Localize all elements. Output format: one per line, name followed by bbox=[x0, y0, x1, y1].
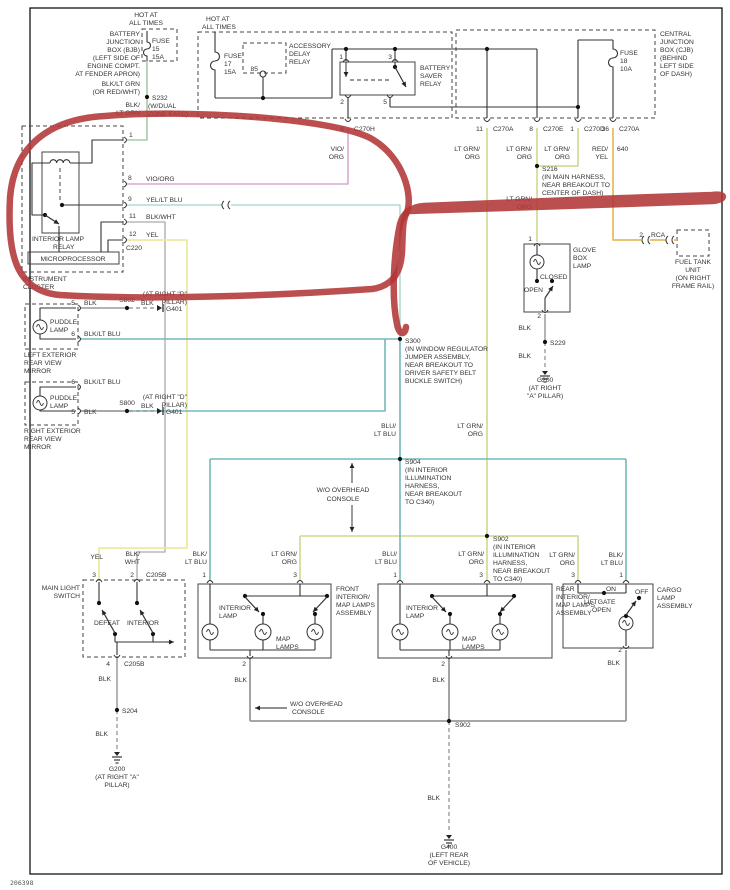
diagram-label: RELAY bbox=[53, 244, 75, 251]
diagram-label: FRAME RAIL) bbox=[672, 283, 714, 290]
diagram-label: LT GRN/ bbox=[544, 146, 570, 153]
splice-dot bbox=[485, 534, 489, 538]
diagram-label: 6 bbox=[71, 379, 75, 386]
wire bbox=[101, 222, 123, 252]
diagram-label: OPEN bbox=[524, 287, 543, 294]
diagram-label: CENTRAL bbox=[660, 31, 691, 38]
diagram-label: NEAR BREAKOUT bbox=[405, 491, 462, 498]
diagram-label: MIRROR bbox=[24, 444, 51, 451]
diagram-label: (BEHIND bbox=[660, 55, 688, 62]
diagram-label: JUMPER ASSEMBLY, bbox=[405, 354, 471, 361]
diagram-label: BLK/WHT bbox=[146, 214, 176, 221]
diagram-label: TO C340) bbox=[493, 576, 522, 583]
diagram-label: 1 bbox=[570, 126, 574, 133]
wire bbox=[108, 240, 123, 252]
diagram-label: LEFT EXTERIOR bbox=[24, 352, 76, 359]
fuse-17-icon bbox=[211, 50, 220, 72]
splice-dot bbox=[447, 719, 451, 723]
diagram-label: LAMP bbox=[50, 403, 69, 410]
diagram-label: S902 bbox=[493, 536, 509, 543]
splice-dot bbox=[97, 601, 101, 605]
diagram-label: BLK bbox=[607, 660, 620, 667]
diagram-label: FUSE bbox=[224, 53, 242, 60]
diagram-label: ALL TIMES bbox=[202, 24, 236, 31]
diagram-label: 3 bbox=[479, 572, 483, 579]
diagram-label: LAMPS bbox=[462, 644, 485, 651]
diagram-label: LIFTGATE bbox=[584, 599, 616, 606]
arrowhead-icon bbox=[350, 527, 355, 532]
splice-dot bbox=[60, 203, 64, 207]
diagram-label: HOT AT bbox=[134, 12, 158, 19]
diagram-label: 5 bbox=[383, 99, 387, 106]
diagram-label: C205B bbox=[124, 661, 145, 668]
diagram-label: (ON RIGHT bbox=[676, 275, 711, 282]
diagram-label: S232 bbox=[152, 95, 168, 102]
connector-pin-icon bbox=[575, 119, 581, 122]
diagram-label: ON bbox=[606, 586, 616, 593]
diagram-label: TO C340) bbox=[405, 499, 434, 506]
diagram-label: OF VEHICLE) bbox=[428, 860, 470, 867]
lamp-filament-icon bbox=[397, 630, 404, 635]
diagram-label: 1 bbox=[619, 572, 623, 579]
arrowhead-icon bbox=[548, 286, 553, 291]
splice-dot bbox=[498, 612, 502, 616]
diagram-label: BATTERY bbox=[420, 65, 451, 72]
diagram-label: CLOSED bbox=[540, 274, 568, 281]
diagram-label: BLK/LT BLU bbox=[84, 331, 121, 338]
diagram-label: 9 bbox=[128, 196, 132, 203]
diagram-label: RELAY bbox=[420, 81, 442, 88]
connector-pin-icon bbox=[124, 181, 127, 187]
diagram-label: BLK bbox=[432, 677, 445, 684]
diagram-label: PUDDLE bbox=[50, 395, 78, 402]
diagram-label: MAP bbox=[462, 636, 477, 643]
connector-pin-icon bbox=[397, 581, 403, 584]
diagram-label: NEAR BREAKOUT TO bbox=[405, 362, 473, 369]
arrowhead-icon bbox=[255, 706, 260, 711]
fuel-tank-unit-box bbox=[677, 230, 709, 256]
arrowhead-icon bbox=[169, 640, 174, 645]
splice-dot bbox=[393, 47, 397, 51]
diagram-label: ASSEMBLY bbox=[556, 610, 592, 617]
diagram-label: ALL TIMES bbox=[129, 20, 163, 27]
diagram-label: ORG bbox=[517, 154, 532, 161]
diagram-label: JUNCTION bbox=[106, 39, 140, 46]
diagram-label: INTERIOR/ bbox=[336, 594, 370, 601]
connector-pin-icon bbox=[96, 580, 102, 583]
splice-dot bbox=[344, 47, 348, 51]
connector-pin-icon bbox=[124, 137, 127, 143]
diagram-label: (AT RIGHT "D" bbox=[143, 394, 188, 401]
diagram-label: C270E bbox=[543, 126, 564, 133]
diagram-label: S229 bbox=[550, 340, 566, 347]
inline-connector-icon bbox=[222, 201, 230, 209]
diagram-label: REAR bbox=[556, 586, 575, 593]
diagram-label: LT GRN/ bbox=[549, 552, 575, 559]
diagram-label: 2 bbox=[537, 313, 541, 320]
splice-dot bbox=[261, 96, 265, 100]
splice-dot bbox=[125, 409, 129, 413]
diagram-label: INTERIOR bbox=[127, 620, 159, 627]
diagram-label: REAR VIEW bbox=[24, 360, 62, 367]
diagram-label: 1 bbox=[129, 132, 133, 139]
diagram-label: ORG bbox=[555, 154, 570, 161]
diagram-label: 4 bbox=[106, 661, 110, 668]
diagram-label: (LEFT REAR bbox=[430, 852, 469, 859]
diagram-label: 3 bbox=[293, 572, 297, 579]
diagram-label: C220 bbox=[126, 245, 142, 252]
splice-dot bbox=[637, 596, 641, 600]
diagram-label: 1 bbox=[393, 572, 397, 579]
diagram-label: RELAY bbox=[289, 59, 311, 66]
diagram-label: S216 bbox=[542, 166, 558, 173]
splice-dot bbox=[145, 95, 149, 99]
wiring-diagram: HOT ATALL TIMESBATTERYJUNCTIONBOX (BJB)(… bbox=[0, 0, 730, 890]
wire bbox=[32, 163, 50, 215]
diagram-label: 10A bbox=[620, 66, 632, 73]
diagram-label: DRIVER SAFETY BELT bbox=[405, 370, 476, 377]
diagram-label: HARNESS, bbox=[405, 483, 439, 490]
connector-pin-icon bbox=[534, 119, 540, 122]
diagram-label: BLK bbox=[518, 325, 531, 332]
diagram-label: BLK bbox=[84, 300, 97, 307]
lamp-filament-icon bbox=[534, 260, 541, 265]
diagram-label: NEAR BREAKOUT bbox=[493, 568, 550, 575]
diagram-label: LT GRN/ bbox=[506, 146, 532, 153]
splice-dot bbox=[543, 340, 547, 344]
diagram-label: BATTERY bbox=[110, 31, 141, 38]
diagram-label: BLK bbox=[98, 676, 111, 683]
diagram-label: 11 bbox=[476, 126, 483, 133]
diagram-label: (W/DUAL bbox=[148, 103, 177, 110]
diagram-label: MAIN LIGHT bbox=[42, 585, 80, 592]
diagram-label: 2 bbox=[242, 661, 246, 668]
diagram-label: PUDDLE bbox=[50, 319, 78, 326]
splice-dot bbox=[535, 279, 539, 283]
diagram-label: LEFT SIDE bbox=[660, 63, 694, 70]
diagram-label: MICROPROCESSOR bbox=[40, 256, 105, 263]
diagram-label: MAP LAMPS bbox=[336, 602, 375, 609]
diagram-label: YEL bbox=[595, 154, 608, 161]
diagram-label: BLK/LT GRN bbox=[102, 81, 141, 88]
splice-dot bbox=[485, 47, 489, 51]
diagram-label: INTERIOR bbox=[219, 605, 251, 612]
diagram-label: WHT bbox=[125, 559, 140, 566]
diagram-label: FUSE bbox=[152, 38, 170, 45]
diagram-label: BLK bbox=[234, 677, 247, 684]
lamp-filament-icon bbox=[37, 325, 44, 330]
connector-pin-icon bbox=[114, 655, 120, 658]
diagram-label: 3 bbox=[388, 54, 392, 61]
diagram-label: BOX (CJB) bbox=[660, 47, 693, 54]
relay-coil-icon bbox=[50, 160, 70, 163]
diagram-label: 15A bbox=[224, 69, 236, 76]
diagram-label: 8 bbox=[529, 126, 533, 133]
diagram-label: ASSEMBLY bbox=[657, 603, 693, 610]
connector-pin-icon bbox=[124, 237, 127, 243]
diagram-label: G401 bbox=[166, 306, 183, 313]
diagram-label: YEL bbox=[146, 232, 159, 239]
front-map-lamps-box bbox=[198, 584, 331, 658]
diagram-label: RIGHT EXTERIOR bbox=[24, 428, 81, 435]
battery-saver-relay-box bbox=[340, 62, 415, 95]
diagram-label: 6 bbox=[71, 331, 75, 338]
diagram-label: BLK bbox=[427, 795, 440, 802]
diagram-label: OF DASH) bbox=[660, 71, 692, 78]
splice-dot bbox=[398, 457, 402, 461]
diagram-label: CARGO bbox=[657, 587, 682, 594]
diagram-label: LT BLU bbox=[375, 559, 397, 566]
diagram-label: LAMPS bbox=[276, 644, 299, 651]
diagram-label: PILLAR) bbox=[162, 402, 187, 409]
diagram-label: (IN INTERIOR bbox=[405, 467, 448, 474]
diagram-label: 15 bbox=[152, 46, 160, 53]
ground-icon bbox=[542, 371, 548, 375]
diagram-label: (IN WINDOW REGULATOR bbox=[405, 346, 488, 353]
diagram-label: 1 bbox=[339, 54, 343, 61]
diagram-label: ORG bbox=[465, 154, 480, 161]
diagram-label: HARNESS, bbox=[493, 560, 527, 567]
lamp-filament-icon bbox=[260, 630, 267, 635]
diagram-label: ORG bbox=[468, 431, 483, 438]
wire-red-yel bbox=[613, 128, 641, 240]
diagram-label: S902 bbox=[455, 722, 471, 729]
diagram-label: LT BLU bbox=[185, 559, 207, 566]
diagram-label: OFF bbox=[635, 589, 648, 596]
diagram-label: CONSOLE bbox=[327, 496, 360, 503]
diagram-label: LT GRN/ bbox=[271, 551, 297, 558]
diagram-label: LT GRN/ bbox=[458, 551, 484, 558]
fuse-18-icon bbox=[609, 47, 618, 69]
diagram-label: AT FENDER APRON) bbox=[75, 71, 140, 78]
diagram-label: 1 bbox=[528, 236, 532, 243]
diagram-label: PILLAR) bbox=[104, 782, 129, 789]
diagram-label: C270A bbox=[493, 126, 514, 133]
diagram-label: 17 bbox=[224, 61, 232, 68]
accessory-delay-relay-box bbox=[243, 43, 286, 73]
diagram-label: INTERIOR bbox=[406, 605, 438, 612]
splice-dot bbox=[261, 612, 265, 616]
diagram-label: INTERIOR LAMP bbox=[32, 236, 85, 243]
diagram-label: 11 bbox=[129, 213, 136, 220]
diagram-label: BLK bbox=[141, 403, 154, 410]
diagram-label: BLK/ bbox=[609, 552, 624, 559]
diagram-label: BLK bbox=[518, 353, 531, 360]
sheet-number: 206398 bbox=[10, 879, 33, 887]
diagram-label: 2 bbox=[441, 661, 445, 668]
diagram-label: 8 bbox=[128, 175, 132, 182]
diagram-label: 85 bbox=[251, 66, 259, 73]
diagram-label: S800 bbox=[119, 400, 135, 407]
diagram-label: LAMP bbox=[573, 263, 592, 270]
diagram-label: RED/ bbox=[592, 146, 608, 153]
diagram-label: "A" PILLAR) bbox=[527, 393, 563, 400]
diagram-label: (LEFT SIDE OF bbox=[93, 55, 140, 62]
lamp-filament-icon bbox=[37, 401, 44, 406]
interior-lamp-relay-box bbox=[42, 152, 79, 233]
lamp-filament-icon bbox=[207, 630, 214, 635]
splice-dot bbox=[398, 337, 402, 341]
diagram-label: (IN MAIN HARNESS, bbox=[542, 174, 606, 181]
diagram-label: 2 bbox=[639, 232, 643, 239]
inline-connector-icon bbox=[666, 236, 674, 244]
diagram-label: LT BLU bbox=[374, 431, 396, 438]
diagram-label: ORG bbox=[282, 559, 297, 566]
diagram-label: (OR RED/WHT) bbox=[92, 89, 140, 96]
diagram-label: UNIT bbox=[685, 267, 701, 274]
diagram-label: VIO/ bbox=[331, 146, 345, 153]
connector-pin-icon bbox=[124, 202, 127, 208]
diagram-label: BLK bbox=[84, 409, 97, 416]
ground-icon bbox=[446, 835, 452, 839]
diagram-label: CONSOLE bbox=[292, 709, 325, 716]
diagram-label: (AT RIGHT "A" bbox=[95, 774, 139, 781]
diagram-label: REAR VIEW bbox=[24, 436, 62, 443]
fuse-15-icon bbox=[144, 40, 151, 58]
lamp-filament-icon bbox=[447, 630, 454, 635]
diagram-label: BLK/LT BLU bbox=[84, 379, 121, 386]
connector-pin-icon bbox=[124, 219, 127, 225]
diagram-label: ORG bbox=[560, 560, 575, 567]
diagram-label: (AT RIGHT bbox=[529, 385, 562, 392]
connector-pin-icon bbox=[623, 581, 629, 584]
lamp-filament-icon bbox=[312, 630, 319, 635]
diagram-label: GLOVE bbox=[573, 247, 597, 254]
connector-pin-icon bbox=[610, 119, 616, 122]
diagram-label: LT GRN/ bbox=[454, 146, 480, 153]
diagram-label: ENGINE COMPT. bbox=[87, 63, 140, 70]
diagram-label: NEAR BREAKOUT TO bbox=[542, 182, 610, 189]
central-junction-box bbox=[456, 30, 655, 118]
diagram-label: BOX (BJB) bbox=[107, 47, 140, 54]
lamp-filament-icon bbox=[497, 630, 504, 635]
diagram-label: DELAY bbox=[289, 51, 311, 58]
diagram-label: (IN INTERIOR bbox=[493, 544, 536, 551]
diagram-label: 3 bbox=[92, 572, 96, 579]
diagram-label: G401 bbox=[166, 409, 183, 416]
diagram-label: BOX bbox=[573, 255, 588, 262]
diagram-label: DEFEAT bbox=[94, 620, 120, 627]
splice-dot bbox=[313, 612, 317, 616]
diagram-label: LT BLU bbox=[601, 560, 623, 567]
diagram-label: C205B bbox=[146, 572, 167, 579]
diagram-label: 18 bbox=[620, 58, 628, 65]
splice-dot bbox=[125, 306, 129, 310]
lamp-filament-icon bbox=[623, 621, 630, 626]
arrowhead-icon bbox=[344, 72, 349, 77]
diagram-label: G400 bbox=[441, 844, 458, 851]
connector-pin-icon bbox=[484, 119, 490, 122]
diagram-label: 5 bbox=[71, 300, 75, 307]
diagram-label: LAMP bbox=[406, 613, 425, 620]
connector-pin-icon bbox=[575, 581, 581, 584]
diagram-label: FRONT bbox=[336, 586, 359, 593]
diagram-label: C270A bbox=[619, 126, 640, 133]
diagram-label: YEL bbox=[90, 554, 103, 561]
diagram-label: ORG bbox=[329, 154, 344, 161]
wiring-diagram-page: HOT ATALL TIMESBATTERYJUNCTIONBOX (BJB)(… bbox=[0, 0, 730, 890]
diagram-label: YEL/LT BLU bbox=[146, 197, 183, 204]
diagram-label: ILLUMINATION bbox=[405, 475, 451, 482]
diagram-label: S300 bbox=[405, 338, 421, 345]
diagram-label: HOT AT bbox=[206, 16, 230, 23]
connector-pin-icon bbox=[345, 119, 351, 122]
diagram-label: 640 bbox=[617, 146, 628, 153]
diagram-label: SWITCH bbox=[54, 593, 81, 600]
diagram-label: BLU/ bbox=[381, 423, 396, 430]
diagram-label: 5 bbox=[71, 409, 75, 416]
diagram-label: FUEL TANK bbox=[675, 259, 711, 266]
inline-connector-icon bbox=[642, 236, 650, 244]
diagram-label: 3 bbox=[571, 572, 575, 579]
diagram-label: W/O OVERHEAD bbox=[317, 487, 370, 494]
connector-pin-icon bbox=[207, 581, 213, 584]
arrowhead-icon bbox=[631, 601, 636, 606]
diagram-label: BLK bbox=[95, 731, 108, 738]
diagram-label: MIRROR bbox=[24, 368, 51, 375]
diagram-label: RCA bbox=[651, 232, 666, 239]
relay-terminal-icon bbox=[260, 71, 266, 77]
diagram-label: 12 bbox=[129, 231, 137, 238]
diagram-label: FUSE bbox=[620, 50, 638, 57]
diagram-label: G200 bbox=[109, 766, 126, 773]
diagram-label: 15A bbox=[152, 54, 164, 61]
diagram-label: 2 bbox=[130, 572, 134, 579]
diagram-label: 36 bbox=[602, 126, 610, 133]
diagram-label: ORG bbox=[469, 559, 484, 566]
diagram-label: BLU/ bbox=[382, 551, 397, 558]
diagram-label: JUNCTION bbox=[660, 39, 694, 46]
diagram-label: 1 bbox=[202, 572, 206, 579]
diagram-label: 2 bbox=[340, 99, 344, 106]
diagram-label: BLK bbox=[141, 300, 154, 307]
diagram-label: ASSEMBLY bbox=[336, 610, 372, 617]
diagram-label: OPEN bbox=[592, 607, 611, 614]
splice-dot bbox=[135, 601, 139, 605]
main-light-switch-box bbox=[83, 580, 185, 657]
diagram-label: BLK/ bbox=[126, 102, 141, 109]
diagram-label: BUCKLE SWITCH) bbox=[405, 378, 462, 385]
diagram-label: 2 bbox=[618, 647, 622, 654]
diagram-label: S904 bbox=[405, 459, 421, 466]
diagram-label: S204 bbox=[122, 708, 138, 715]
diagram-label: G200 bbox=[537, 377, 554, 384]
diagram-label: SAVER bbox=[420, 73, 442, 80]
diagram-label: MAP bbox=[276, 636, 291, 643]
connector-pin-icon bbox=[297, 581, 303, 584]
wire-yel-lt-blu bbox=[231, 205, 400, 339]
ground-icon bbox=[114, 752, 120, 756]
diagram-label: BLK/ bbox=[193, 551, 208, 558]
diagram-label: W/O OVERHEAD bbox=[290, 701, 343, 708]
diagram-label: LAMP bbox=[657, 595, 676, 602]
diagram-label: LAMP bbox=[50, 327, 69, 334]
splice-dot bbox=[535, 164, 539, 168]
splice-dot bbox=[448, 612, 452, 616]
splice-dot bbox=[115, 708, 119, 712]
diagram-label: ACCESSORY bbox=[289, 43, 331, 50]
diagram-label: VIO/ORG bbox=[146, 176, 175, 183]
diagram-label: ILLUMINATION bbox=[493, 552, 539, 559]
diagram-label: LT GRN/ bbox=[457, 423, 483, 430]
diagram-label: LAMP bbox=[219, 613, 238, 620]
connector-pin-icon bbox=[484, 581, 490, 584]
diagram-label: BLK/ bbox=[126, 551, 141, 558]
arrowhead-icon bbox=[350, 463, 355, 468]
splice-dot bbox=[576, 105, 580, 109]
